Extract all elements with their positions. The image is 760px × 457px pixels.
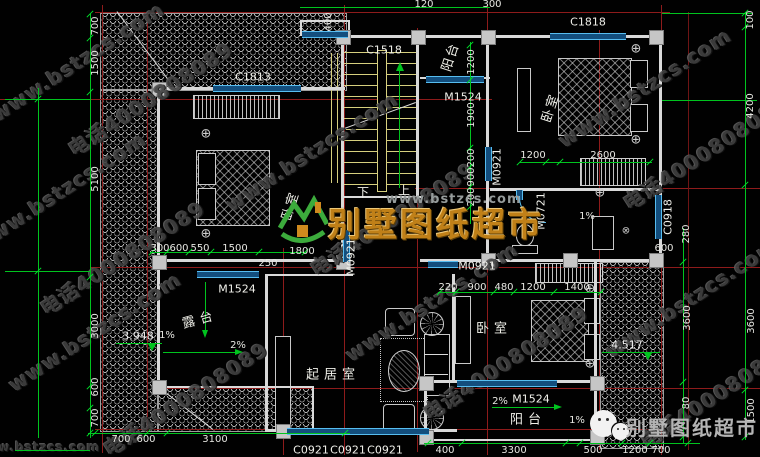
- slope-arrowhead: [202, 330, 208, 338]
- door-m0921-bottom: [428, 261, 458, 268]
- stair-arrow-up: [396, 62, 404, 71]
- dim-label: 1200: [520, 283, 545, 293]
- slope-label: 2%: [492, 397, 508, 407]
- axis-line: [95, 12, 670, 13]
- slope-arrow: [163, 352, 235, 353]
- dim-label: 700: [91, 16, 101, 35]
- room-label-terrace: 露台: [181, 309, 219, 331]
- wall: [416, 35, 419, 198]
- dim-label: 600: [91, 377, 101, 396]
- axis-line: [102, 5, 103, 453]
- site-logo: www.bstzcs.com 别墅图纸超市: [278, 192, 544, 252]
- dim-line: [745, 12, 746, 440]
- dim-label: 200: [467, 148, 477, 167]
- dim-label: 1400: [564, 283, 589, 293]
- dim-label: 700: [651, 446, 670, 456]
- window-c1813: [213, 85, 301, 92]
- dim-label: 4200: [746, 93, 756, 118]
- dim-label: 700: [91, 408, 101, 427]
- coffee-table: [388, 350, 420, 392]
- ceiling-fan-icon: ⊕: [585, 358, 596, 371]
- window-label-c0921: C0921: [367, 445, 403, 456]
- watermark-site: www.bstzcs.com: [0, 440, 100, 454]
- room-label-living: 起居室: [306, 369, 360, 382]
- dim-line: [662, 13, 752, 14]
- wall: [312, 388, 314, 430]
- door-label-m1524: M1524: [444, 92, 482, 103]
- dim-label: 480: [494, 283, 513, 293]
- dim-label: 3600: [683, 305, 693, 330]
- column: [649, 30, 664, 45]
- dim-label: 1500: [222, 244, 247, 254]
- dim-line: [90, 14, 91, 438]
- dim-label: 550: [190, 244, 209, 254]
- wechat-account-name: 别墅图纸超市: [626, 412, 758, 441]
- dim-label: 250: [258, 259, 277, 269]
- wardrobe: [193, 95, 280, 119]
- dim-label: 1200: [622, 446, 647, 456]
- dim-line: [300, 7, 490, 8]
- window-label-c1518: C1518: [366, 45, 402, 56]
- sofa-seat-line: [424, 354, 448, 355]
- sofa-seat-line: [424, 374, 448, 375]
- dim-label: 120: [414, 0, 433, 10]
- column: [563, 253, 578, 268]
- column: [152, 255, 167, 270]
- dim-label: 400: [435, 446, 454, 456]
- dim-line: [5, 271, 90, 272]
- dim-line: [424, 443, 700, 444]
- dim-line: [38, 88, 39, 438]
- wall: [265, 274, 353, 276]
- room-label-balcony-bottom: 阳台: [510, 414, 546, 427]
- window-label-c1818: C1818: [570, 17, 606, 28]
- room-label-balcony-top: 阳台: [440, 41, 462, 74]
- dim-label: 100: [746, 10, 756, 29]
- window-label-c1813: C1813: [235, 72, 271, 83]
- dim-label: 80: [682, 397, 692, 410]
- floorplan-canvas: www.bstzcs.com 电话4000808089 www.bstzcs.c…: [0, 0, 760, 457]
- dim-label: 3600: [747, 308, 757, 333]
- ceiling-fan-icon: ⊕: [201, 228, 212, 241]
- dim-label: 1500: [91, 50, 101, 75]
- dim-label: 1200: [467, 49, 477, 74]
- stair-section-line: [337, 53, 338, 183]
- dim-label: 5100: [0, 165, 1, 190]
- pillow: [198, 153, 216, 185]
- dim-label: 1900: [467, 102, 477, 127]
- column: [411, 30, 426, 45]
- house-logo-icon: [278, 192, 328, 252]
- dim-label: 300: [150, 244, 169, 254]
- door-m1524-top: [426, 76, 484, 83]
- dim-label: 280: [682, 224, 692, 243]
- door-label-m1524: M1524: [218, 284, 256, 295]
- slope-label: 1%: [159, 331, 175, 341]
- level-triangle: [148, 344, 156, 351]
- dim-label: 2600: [590, 151, 615, 161]
- window-unit: [275, 336, 291, 432]
- window-c1518: [302, 31, 348, 38]
- door-label-m1524: M1524: [512, 394, 550, 405]
- tv-cabinet: [455, 296, 471, 364]
- dim-label: 3000: [0, 322, 1, 347]
- logo-title: 别墅图纸超市: [328, 208, 544, 242]
- wall: [424, 439, 600, 441]
- ceiling-fan-icon: ⊕: [595, 187, 606, 200]
- window-label-c0918: C0918: [663, 199, 674, 235]
- column: [649, 253, 664, 268]
- dim-label: 400: [324, 12, 334, 31]
- dim-label: 220: [438, 283, 457, 293]
- dim-line: [662, 100, 757, 101]
- dim-label: 1500: [0, 47, 1, 72]
- wash-basin: [592, 216, 614, 250]
- level-value-roof: 4.517: [611, 339, 643, 352]
- dim-label: 3300: [501, 446, 526, 456]
- dim-label: 600: [169, 244, 188, 254]
- door-m1524-bottom: [457, 380, 557, 387]
- stair-walkline: [399, 70, 400, 188]
- slope-arrowhead: [554, 404, 562, 410]
- dim-label: 900: [467, 167, 477, 186]
- slope-label: 1%: [569, 416, 585, 426]
- dim-line: [15, 450, 90, 451]
- window-label-c0921: C0921: [293, 445, 329, 456]
- column: [481, 30, 496, 45]
- dim-label: 900: [467, 283, 486, 293]
- slope-label: 1%: [579, 212, 595, 222]
- floor-drain-icon: ⊗: [622, 225, 630, 238]
- column: [419, 376, 434, 391]
- dim-label: 700: [111, 435, 130, 445]
- stair-section-line: [331, 53, 332, 183]
- dim-label: 5100: [91, 166, 101, 191]
- dim-label: 600: [654, 244, 673, 254]
- ceiling-fan-icon: ⊕: [631, 134, 642, 147]
- ceiling-fan-icon: ⊕: [201, 128, 212, 141]
- window-c1818: [550, 33, 626, 40]
- dim-line: [5, 99, 90, 100]
- door-m1524-left: [197, 271, 259, 278]
- level-triangle: [644, 353, 652, 360]
- room-label-bedroom-bottom: 卧室: [476, 323, 512, 336]
- window-label-c0921: C0921: [330, 445, 366, 456]
- dim-label: 300: [482, 0, 501, 10]
- dim-label: 3000: [91, 313, 101, 338]
- slope-label: 2%: [230, 341, 246, 351]
- dim-line: [520, 162, 652, 163]
- column: [590, 376, 605, 391]
- mirror-cabinet: [517, 68, 531, 132]
- door-label-m0921: M0921: [458, 261, 496, 272]
- dim-label: 3100: [202, 435, 227, 445]
- level-value-terrace: 3.948: [122, 330, 154, 343]
- dim-label: 600: [136, 435, 155, 445]
- dim-label: 500: [583, 446, 602, 456]
- door-label-m0921: M0921: [492, 148, 503, 186]
- slope-arrow: [492, 407, 554, 408]
- ceiling-fan-icon: ⊕: [631, 43, 642, 56]
- dim-label: 1200: [520, 151, 545, 161]
